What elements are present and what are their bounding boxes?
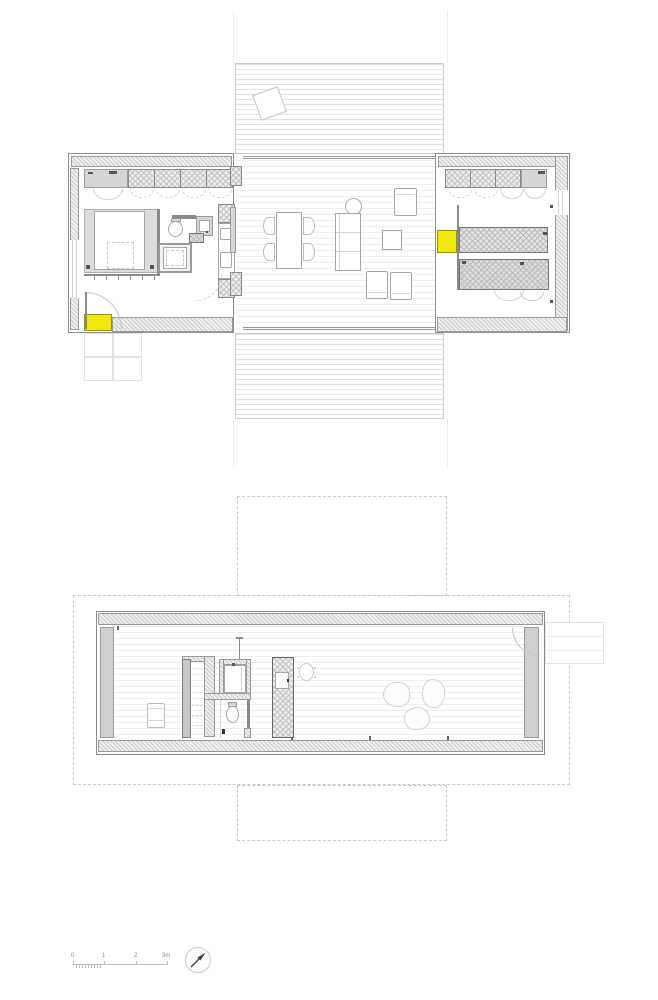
- scale-bar: 0 1 2 3m: [0, 0, 658, 1000]
- scale-subtick: [88, 965, 89, 968]
- scale-subtick: [76, 965, 77, 968]
- scale-tick: [73, 961, 74, 965]
- north-arrow-icon: [184, 946, 212, 974]
- scale-subtick: [97, 965, 98, 968]
- scale-label-3m: 3m: [162, 953, 170, 959]
- scale-subtick: [94, 965, 95, 968]
- drawing-sheet: 0 1 2 3m: [0, 0, 658, 1000]
- scale-label-2: 2: [134, 953, 137, 959]
- scale-label-1: 1: [102, 953, 105, 959]
- scale-tick: [136, 961, 137, 965]
- scale-subtick: [91, 965, 92, 968]
- scale-subtick: [85, 965, 86, 968]
- scale-subtick: [100, 965, 101, 968]
- scale-label-0: 0: [71, 953, 74, 959]
- scale-subtick: [79, 965, 80, 968]
- scale-tick: [104, 961, 105, 965]
- scale-tick: [167, 961, 168, 965]
- scale-subtick: [82, 965, 83, 968]
